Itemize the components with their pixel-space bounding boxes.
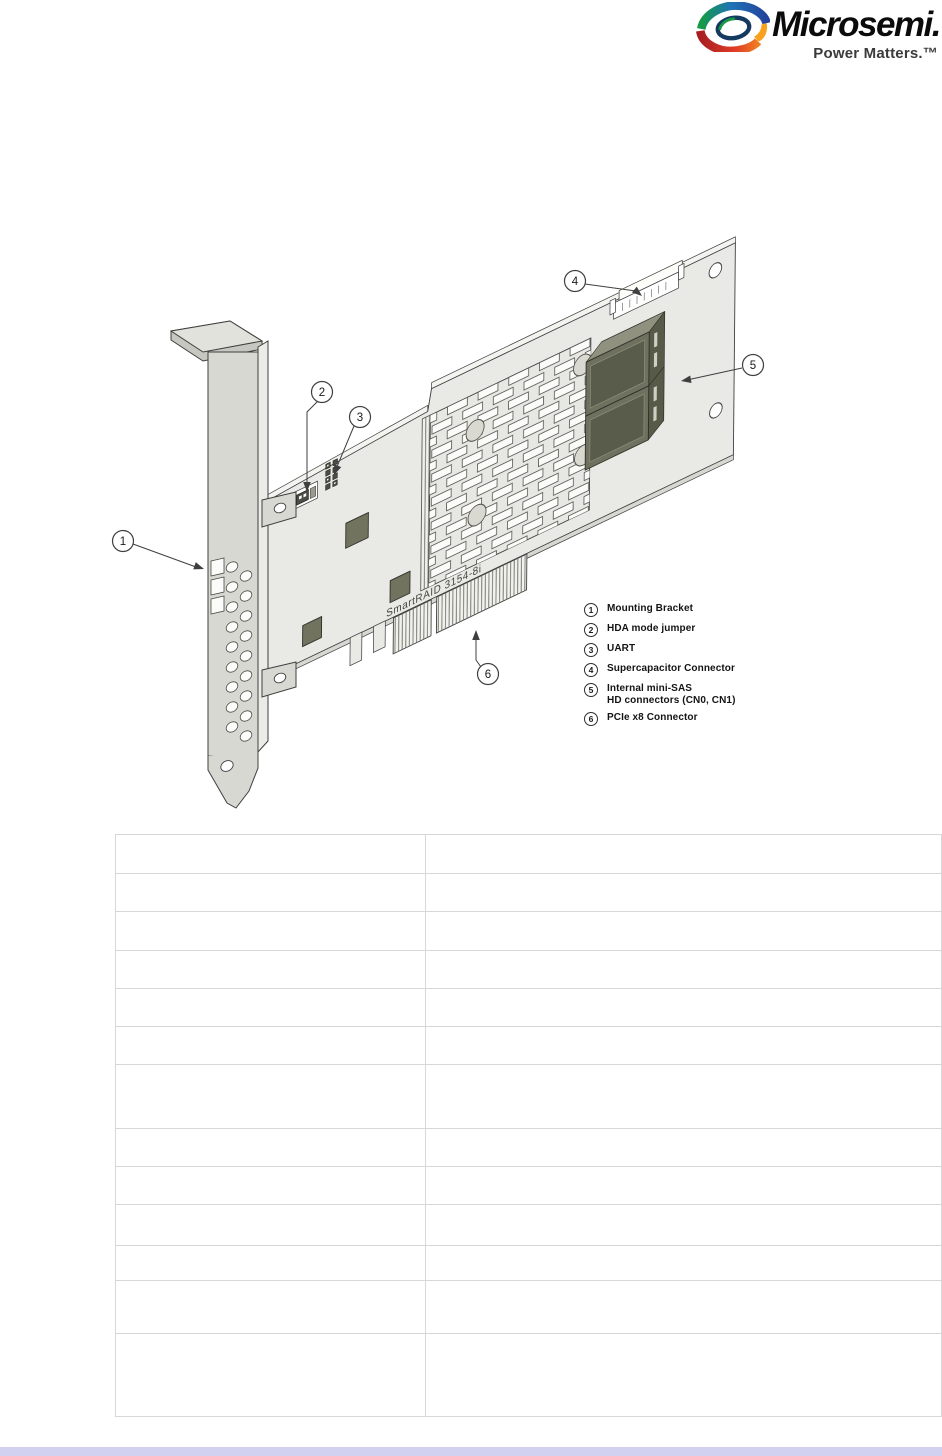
legend-label: Supercapacitor Connector <box>607 663 735 675</box>
legend-item-pcie: 6 PCIe x8 Connector <box>584 712 839 726</box>
table-cell <box>116 1167 426 1205</box>
table-cell <box>116 835 426 874</box>
table-cell <box>426 1065 942 1129</box>
table-row <box>116 1334 942 1417</box>
table-row <box>116 874 942 912</box>
legend-label: PCIe x8 Connector <box>607 712 698 724</box>
table-cell <box>116 1281 426 1334</box>
callout-1: 1 <box>113 531 134 552</box>
table-cell <box>116 874 426 912</box>
table-cell <box>426 989 942 1027</box>
table-cell <box>426 874 942 912</box>
table-row <box>116 1167 942 1205</box>
table-row <box>116 912 942 951</box>
legend-label: UART <box>607 643 635 655</box>
legend-number: 3 <box>584 643 598 657</box>
table-cell <box>426 1027 942 1065</box>
table-row <box>116 835 942 874</box>
table-cell <box>426 1334 942 1417</box>
legend-number: 1 <box>584 603 598 617</box>
legend-label: Internal mini-SAS HD connectors (CN0, CN… <box>607 683 736 706</box>
table-cell <box>426 1129 942 1167</box>
callout-6: 6 <box>478 664 499 685</box>
table-row <box>116 1065 942 1129</box>
table-cell <box>116 1027 426 1065</box>
legend-item-minisas: 5 Internal mini-SAS HD connectors (CN0, … <box>584 683 839 706</box>
legend-item-mounting-bracket: 1 Mounting Bracket <box>584 603 839 617</box>
table-row <box>116 989 942 1027</box>
legend-item-hda-jumper: 2 HDA mode jumper <box>584 623 839 637</box>
svg-text:3: 3 <box>357 412 363 424</box>
table-cell <box>116 1246 426 1281</box>
legend-label: Mounting Bracket <box>607 603 693 615</box>
figure-legend: 1 Mounting Bracket 2 HDA mode jumper 3 U… <box>584 603 839 732</box>
svg-text:5: 5 <box>750 360 756 372</box>
table-cell <box>426 1167 942 1205</box>
callout-4: 4 <box>565 271 586 292</box>
table-row <box>116 1129 942 1167</box>
table-cell <box>426 951 942 989</box>
svg-text:6: 6 <box>485 669 491 681</box>
table-cell <box>426 835 942 874</box>
table-cell <box>426 912 942 951</box>
table-cell <box>116 1334 426 1417</box>
table-row <box>116 1281 942 1334</box>
legend-label: HDA mode jumper <box>607 623 695 635</box>
table-row <box>116 1027 942 1065</box>
table-row <box>116 951 942 989</box>
table-row <box>116 1205 942 1246</box>
legend-number: 2 <box>584 623 598 637</box>
table-cell <box>116 912 426 951</box>
table-cell <box>116 1205 426 1246</box>
footer-accent-bar <box>0 1447 942 1456</box>
legend-number: 5 <box>584 683 598 697</box>
callout-3: 3 <box>350 407 371 428</box>
svg-text:4: 4 <box>572 276 579 288</box>
legend-number: 6 <box>584 712 598 726</box>
table-cell <box>116 1065 426 1129</box>
spec-table <box>115 834 942 1417</box>
legend-item-uart: 3 UART <box>584 643 839 657</box>
table-cell <box>426 1281 942 1334</box>
callout-5: 5 <box>743 355 764 376</box>
table-row <box>116 1246 942 1281</box>
table-cell <box>426 1246 942 1281</box>
callout-2: 2 <box>312 382 333 403</box>
table-cell <box>116 1129 426 1167</box>
legend-number: 4 <box>584 663 598 677</box>
legend-item-supercap: 4 Supercapacitor Connector <box>584 663 839 677</box>
table-cell <box>116 951 426 989</box>
table-cell <box>116 989 426 1027</box>
document-page: Microsemi. Power Matters.™ <box>0 0 942 1456</box>
svg-text:1: 1 <box>120 536 126 548</box>
table-cell <box>426 1205 942 1246</box>
svg-text:2: 2 <box>319 387 325 399</box>
